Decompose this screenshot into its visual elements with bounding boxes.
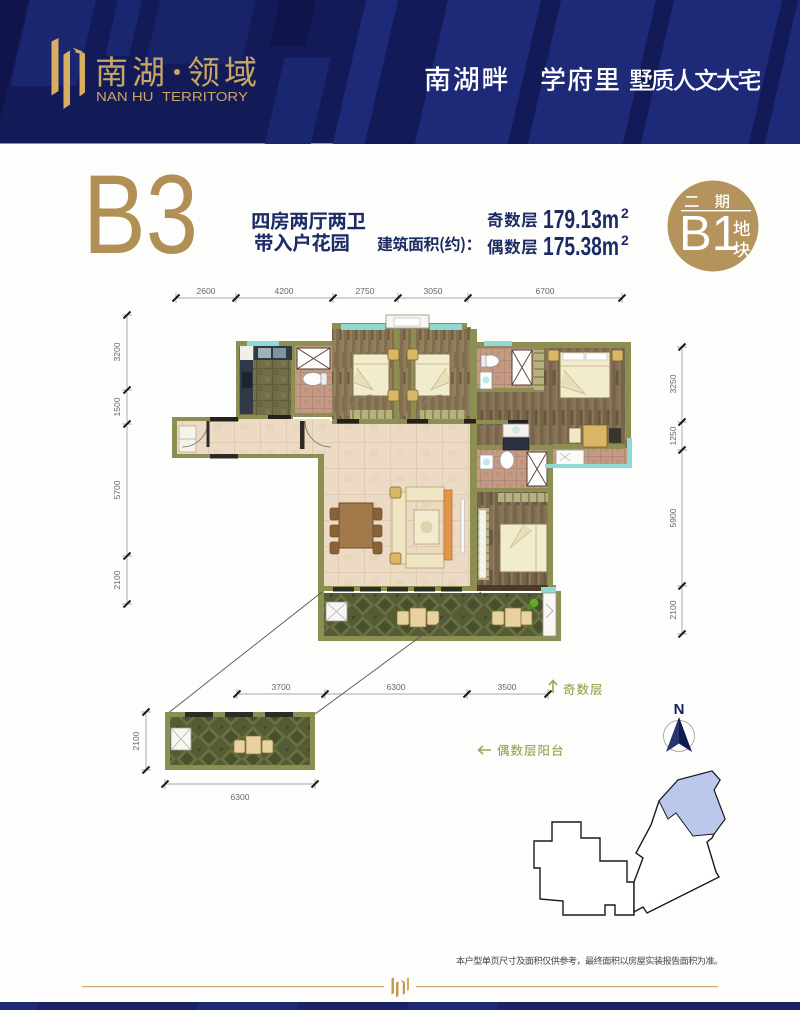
svg-text:2750: 2750 [356, 286, 375, 296]
svg-text:3500: 3500 [498, 682, 517, 692]
svg-text:5700: 5700 [112, 480, 122, 499]
svg-text:4200: 4200 [275, 286, 294, 296]
svg-text:175.38m: 175.38m [543, 231, 619, 261]
svg-text:2100: 2100 [131, 731, 141, 750]
svg-text:2: 2 [621, 232, 629, 248]
svg-text:6300: 6300 [231, 792, 250, 802]
svg-text:1250: 1250 [668, 426, 678, 445]
svg-text:3200: 3200 [112, 342, 122, 361]
svg-text:2600: 2600 [197, 286, 216, 296]
svg-text:3250: 3250 [668, 374, 678, 393]
svg-text:6300: 6300 [387, 682, 406, 692]
svg-text:1500: 1500 [112, 397, 122, 416]
svg-text:2: 2 [621, 205, 629, 221]
svg-text:B1: B1 [679, 207, 739, 261]
svg-text:B3: B3 [83, 152, 198, 277]
svg-text:NAN HU TERRITORY: NAN HU TERRITORY [96, 90, 249, 104]
svg-text:2100: 2100 [112, 570, 122, 589]
svg-text:2100: 2100 [668, 600, 678, 619]
svg-text:3050: 3050 [424, 286, 443, 296]
svg-text:179.13m: 179.13m [543, 204, 619, 234]
svg-text:N: N [674, 701, 685, 718]
svg-text:3700: 3700 [272, 682, 291, 692]
svg-text:6700: 6700 [536, 286, 555, 296]
svg-text:5900: 5900 [668, 508, 678, 527]
